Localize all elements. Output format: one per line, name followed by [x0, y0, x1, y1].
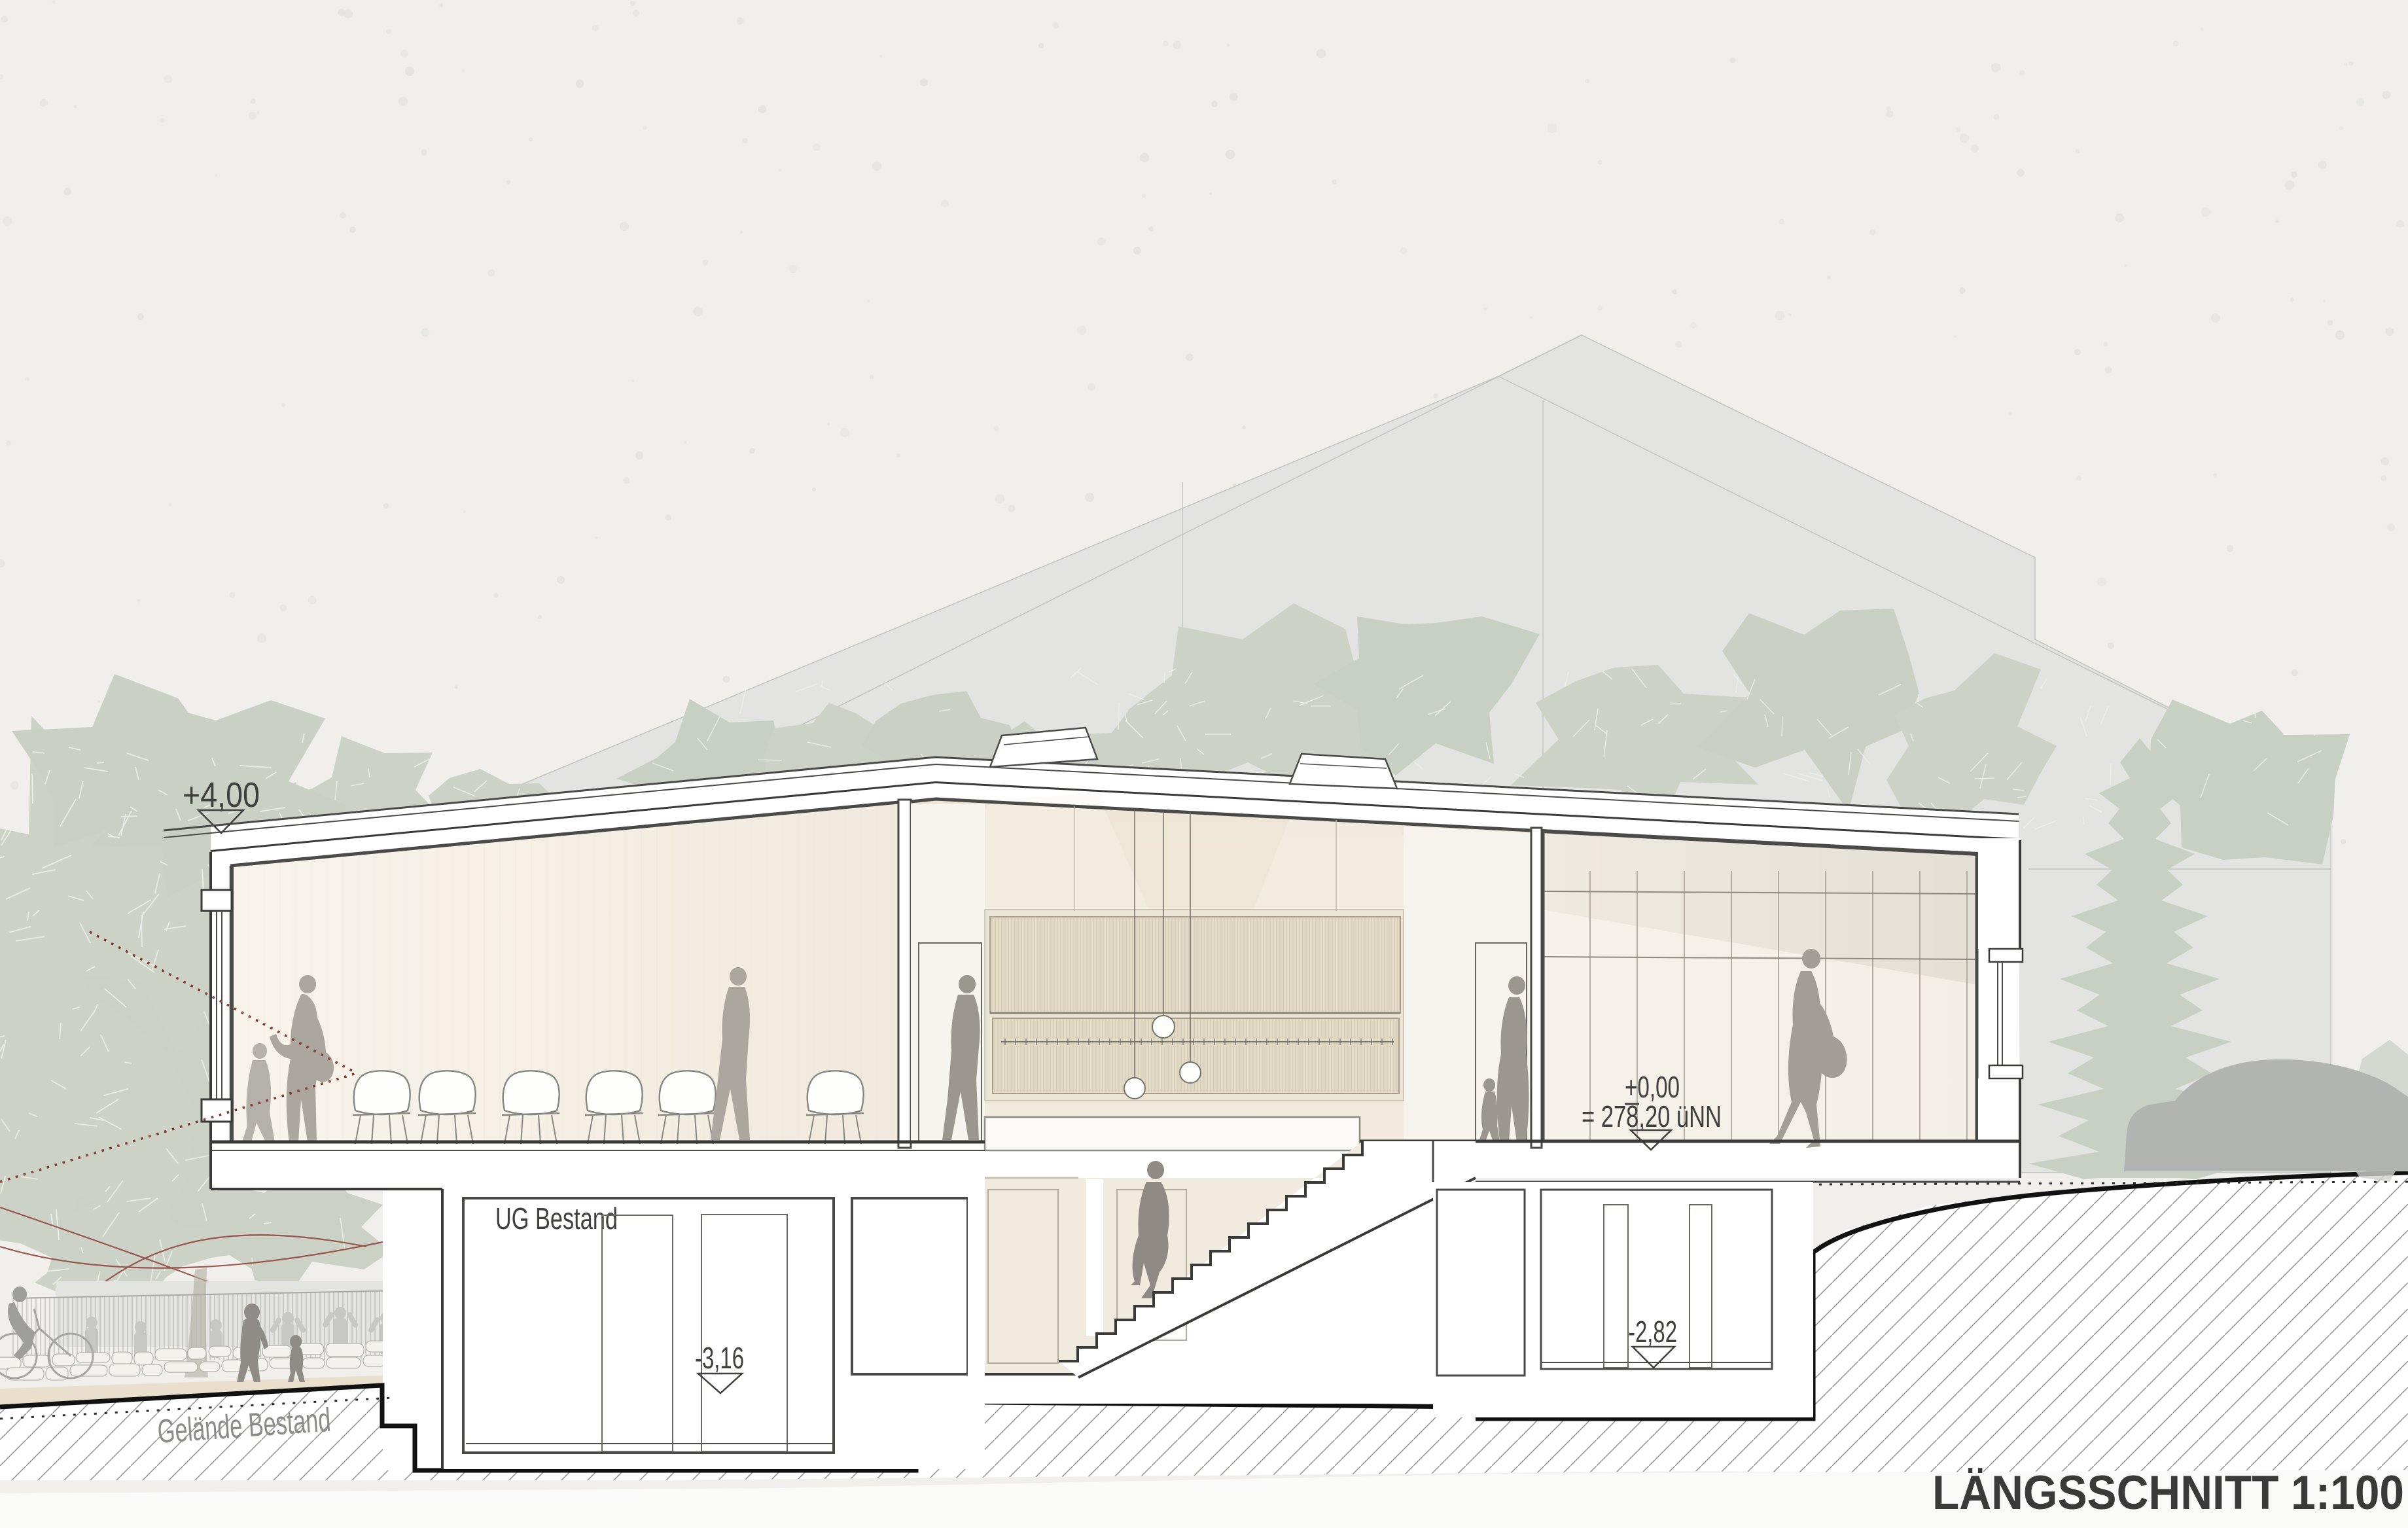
svg-text:= 278,20 üNN: = 278,20 üNN [1582, 1099, 1722, 1133]
svg-text:LÄNGSSCHNITT 1:100: LÄNGSSCHNITT 1:100 [1932, 1466, 2404, 1519]
svg-text:UG Bestand: UG Bestand [495, 1201, 618, 1235]
svg-text:+4,00: +4,00 [183, 775, 260, 815]
svg-text:-3,16: -3,16 [695, 1341, 744, 1375]
svg-text:-2,82: -2,82 [1628, 1315, 1677, 1349]
